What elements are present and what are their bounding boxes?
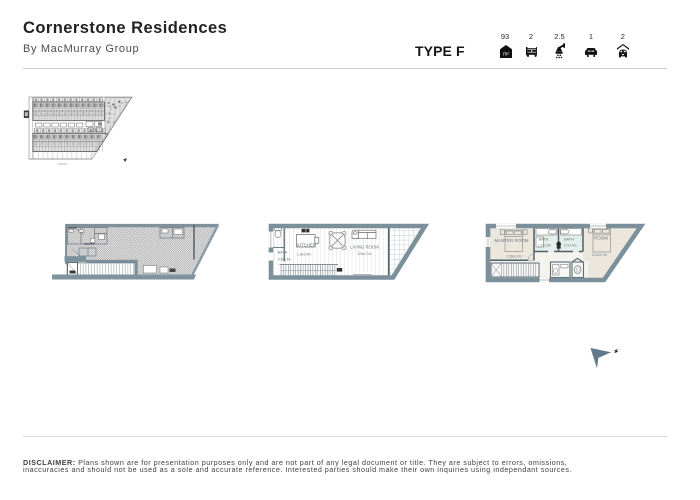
svg-text:0.8x1.4m: 0.8x1.4m xyxy=(278,258,291,262)
svg-text:BATH: BATH xyxy=(539,237,549,241)
svg-text:KITCHEN: KITCHEN xyxy=(297,243,316,248)
svg-text:1.8x2.9m: 1.8x2.9m xyxy=(297,253,311,257)
svg-text:3.5x2.7m: 3.5x2.7m xyxy=(358,252,372,256)
svg-text:3.2x3.7m: 3.2x3.7m xyxy=(592,253,607,257)
svg-text:1.7x1.4m: 1.7x1.4m xyxy=(563,244,576,248)
svg-text:LIVING ROOM: LIVING ROOM xyxy=(350,244,379,249)
svg-text:m²: m² xyxy=(503,51,509,57)
svg-text:2.8x3.2m: 2.8x3.2m xyxy=(506,254,521,258)
svg-text:ROOM: ROOM xyxy=(594,236,608,241)
svg-text:BATH: BATH xyxy=(564,237,574,241)
svg-text:1.7x1.9m: 1.7x1.9m xyxy=(538,244,551,248)
svg-text:BATH: BATH xyxy=(278,251,288,255)
svg-text:MASTER ROOM: MASTER ROOM xyxy=(494,238,528,243)
